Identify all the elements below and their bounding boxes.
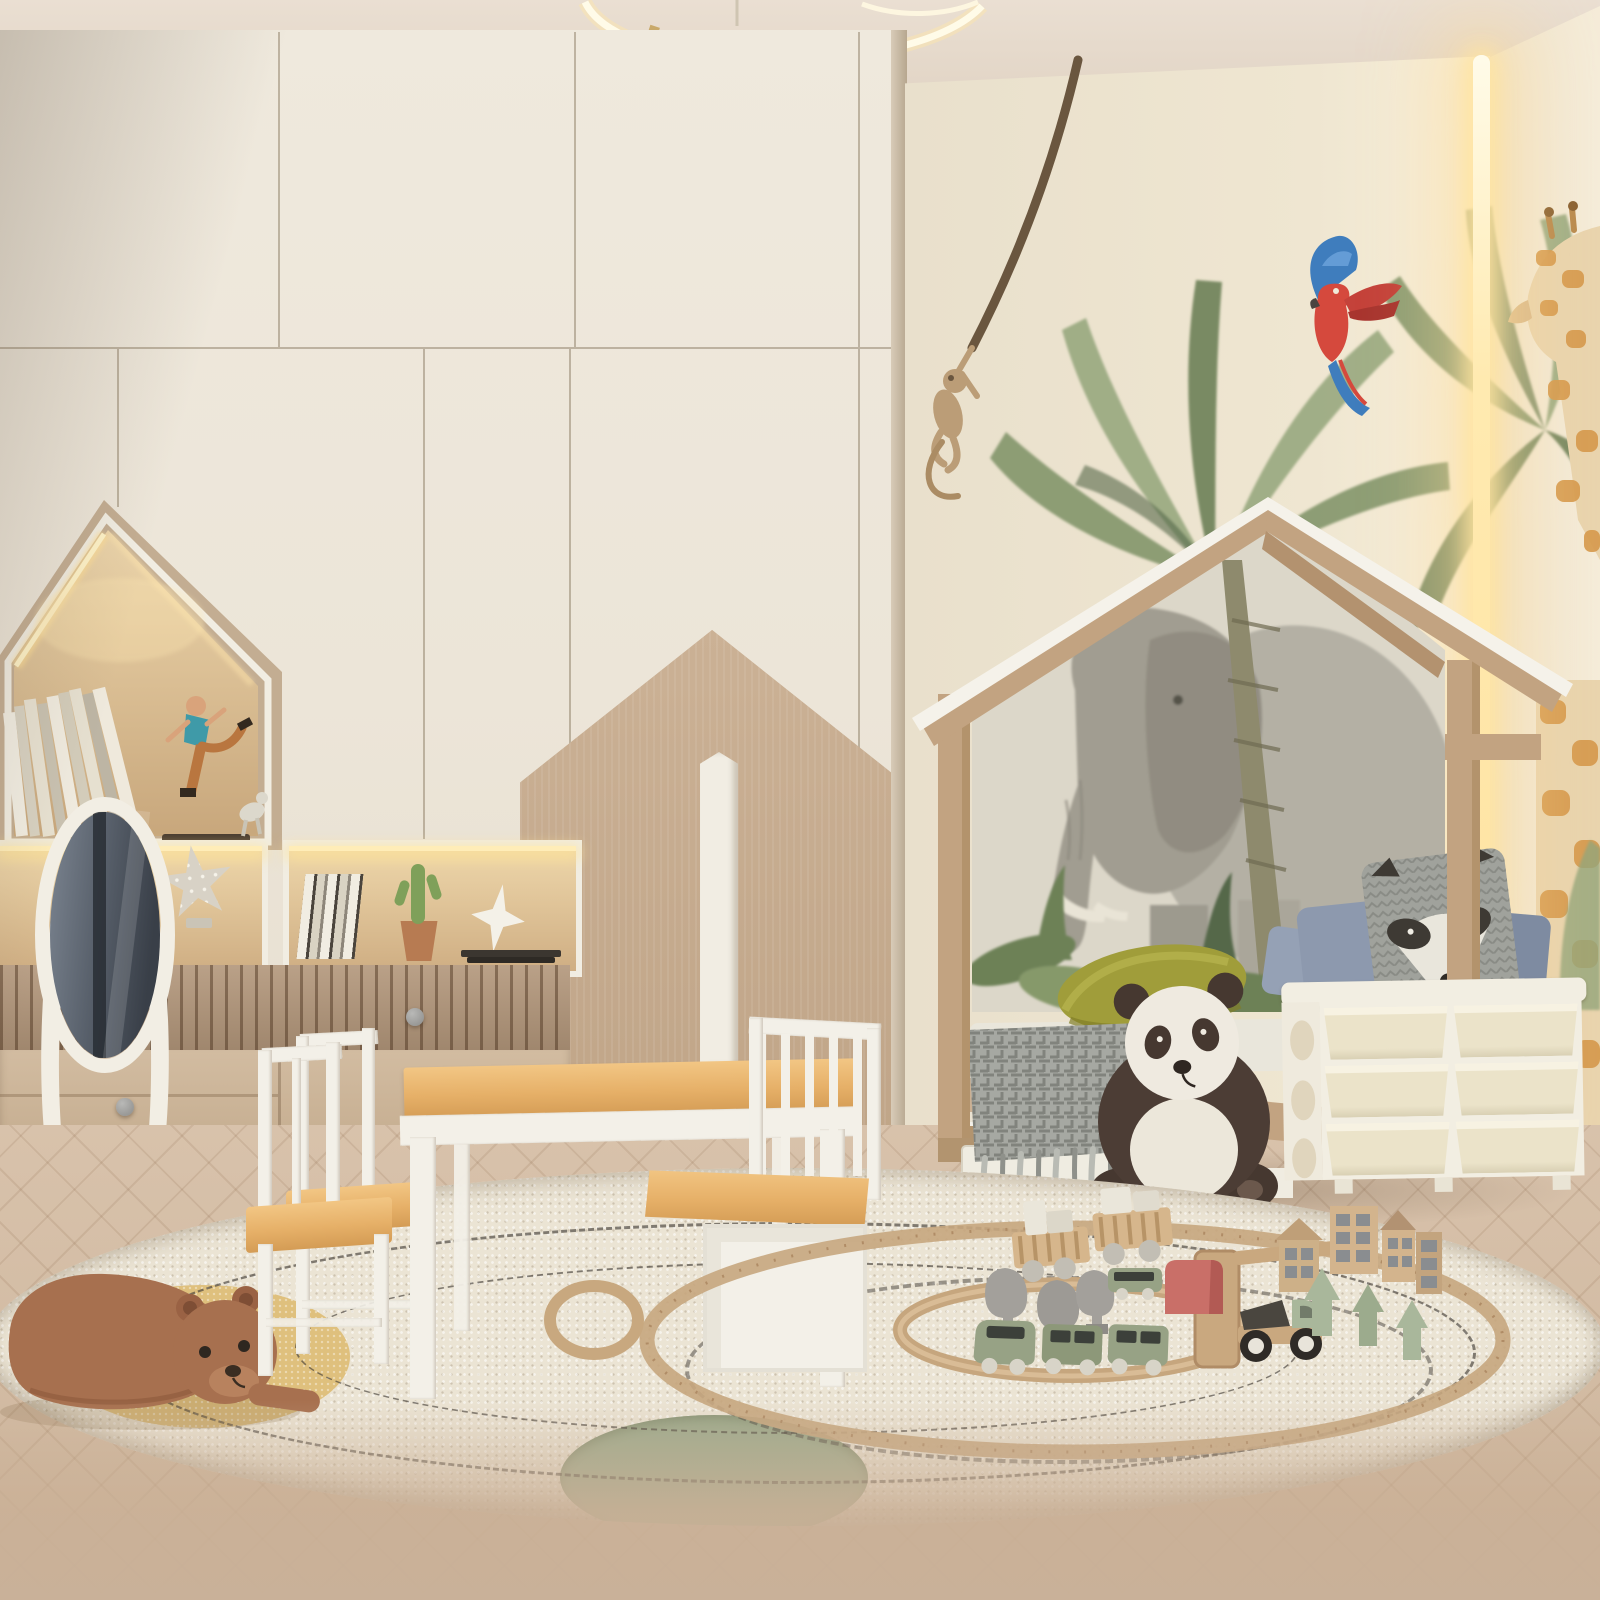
- kids-chair-front: [258, 1038, 408, 1368]
- cactus-pot: [397, 921, 441, 961]
- table-back-leg: [454, 1119, 470, 1331]
- table-leg: [410, 1137, 436, 1399]
- black-book-stack: [461, 950, 561, 957]
- storage-bin: [1455, 1061, 1580, 1115]
- storage-bin: [1326, 1122, 1451, 1176]
- wardrobe-seam: [117, 349, 119, 507]
- green-truck: [1238, 1299, 1322, 1362]
- track-ring-toy: [550, 1286, 638, 1354]
- cactus: [411, 864, 425, 924]
- kids-room-scene: [0, 0, 1600, 1600]
- white-star-ornament: [467, 881, 530, 956]
- niche-led-strip: [289, 846, 576, 851]
- cactus-arm: [393, 879, 411, 907]
- bench-post: [749, 1018, 763, 1190]
- storage-bin: [1454, 1004, 1579, 1058]
- wardrobe-seam: [858, 32, 860, 347]
- cactus-arm: [425, 873, 443, 901]
- niche-books: [297, 874, 364, 959]
- display-niche-right: [283, 840, 582, 977]
- plastic-storage-unit: [1281, 977, 1590, 1200]
- black-book-stack: [467, 957, 555, 963]
- storage-bin: [1456, 1119, 1581, 1173]
- wardrobe-seam: [574, 32, 576, 347]
- storage-bin: [1324, 1006, 1449, 1060]
- red-arch-block: [1165, 1260, 1223, 1314]
- bench-spindles: [757, 1034, 871, 1176]
- toy-houses: [1275, 1206, 1442, 1294]
- wooden-train-set: [520, 1180, 1600, 1510]
- bench-post: [867, 1028, 881, 1200]
- wardrobe-seam: [423, 349, 425, 839]
- wardrobe-seam: [0, 347, 905, 349]
- wardrobe-seam: [278, 32, 280, 347]
- storage-bin: [1325, 1064, 1450, 1118]
